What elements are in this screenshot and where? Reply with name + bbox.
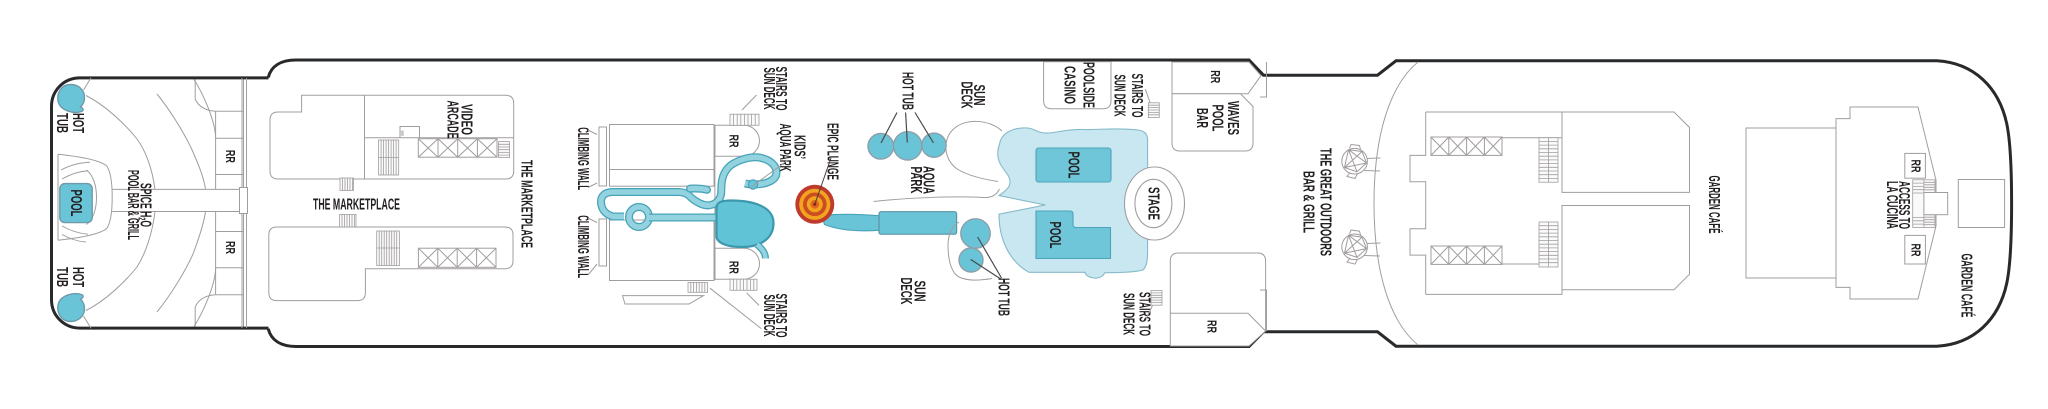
svg-text:RR: RR (1909, 244, 1923, 257)
svg-text:POOLSIDE: POOLSIDE (1080, 62, 1097, 108)
svg-text:SUN DECK: SUN DECK (760, 295, 777, 337)
svg-text:SUN DECK: SUN DECK (760, 68, 777, 110)
svg-text:RR: RR (1909, 160, 1923, 173)
svg-text:PARK: PARK (907, 167, 924, 195)
svg-text:THE MARKETPLACE: THE MARKETPLACE (518, 160, 535, 248)
svg-text:DECK: DECK (958, 82, 975, 109)
svg-text:CLIMBING WALL: CLIMBING WALL (574, 215, 591, 278)
svg-text:CASINO: CASINO (1061, 66, 1078, 104)
svg-text:BAR: BAR (1193, 108, 1210, 128)
svg-text:HOT TUB: HOT TUB (899, 72, 916, 110)
svg-text:STAGE: STAGE (1145, 187, 1162, 220)
svg-text:ARCADE: ARCADE (444, 101, 461, 139)
svg-text:BAR & GRILL: BAR & GRILL (1300, 171, 1317, 233)
svg-text:DECK: DECK (897, 278, 914, 305)
svg-text:GARDEN CAFÉ: GARDEN CAFÉ (1957, 254, 1974, 318)
svg-text:TUB: TUB (53, 267, 70, 287)
svg-text:RR: RR (223, 150, 237, 163)
svg-text:THE MARKETPLACE: THE MARKETPLACE (313, 196, 400, 213)
svg-text:POOL: POOL (1046, 222, 1063, 249)
svg-text:RR: RR (223, 241, 237, 254)
svg-text:RR: RR (727, 135, 741, 148)
svg-text:THE GREAT OUTDOORS: THE GREAT OUTDOORS (1317, 148, 1334, 256)
svg-text:SUN DECK: SUN DECK (1111, 75, 1128, 117)
svg-text:RR: RR (727, 261, 741, 274)
svg-text:AQUA PARK: AQUA PARK (776, 124, 793, 172)
svg-text:POOL: POOL (1065, 152, 1082, 179)
svg-text:STAIRS TO: STAIRS TO (1136, 292, 1153, 336)
svg-text:CLIMBING WALL: CLIMBING WALL (574, 127, 591, 190)
svg-text:RR: RR (1208, 70, 1222, 83)
svg-text:HOT: HOT (69, 267, 86, 287)
svg-text:HOT TUB: HOT TUB (995, 278, 1012, 316)
svg-text:HOT: HOT (69, 113, 86, 133)
svg-text:POOL BAR & GRILL: POOL BAR & GRILL (124, 170, 141, 240)
svg-text:SUN DECK: SUN DECK (1120, 293, 1137, 335)
svg-text:POOL: POOL (67, 190, 84, 217)
svg-text:STAIRS TO: STAIRS TO (1128, 74, 1145, 118)
svg-text:RR: RR (1205, 320, 1219, 333)
svg-text:GARDEN CAFÉ: GARDEN CAFÉ (1705, 176, 1722, 234)
svg-text:LA CUCINA: LA CUCINA (1883, 181, 1900, 229)
svg-text:TUB: TUB (53, 113, 70, 133)
